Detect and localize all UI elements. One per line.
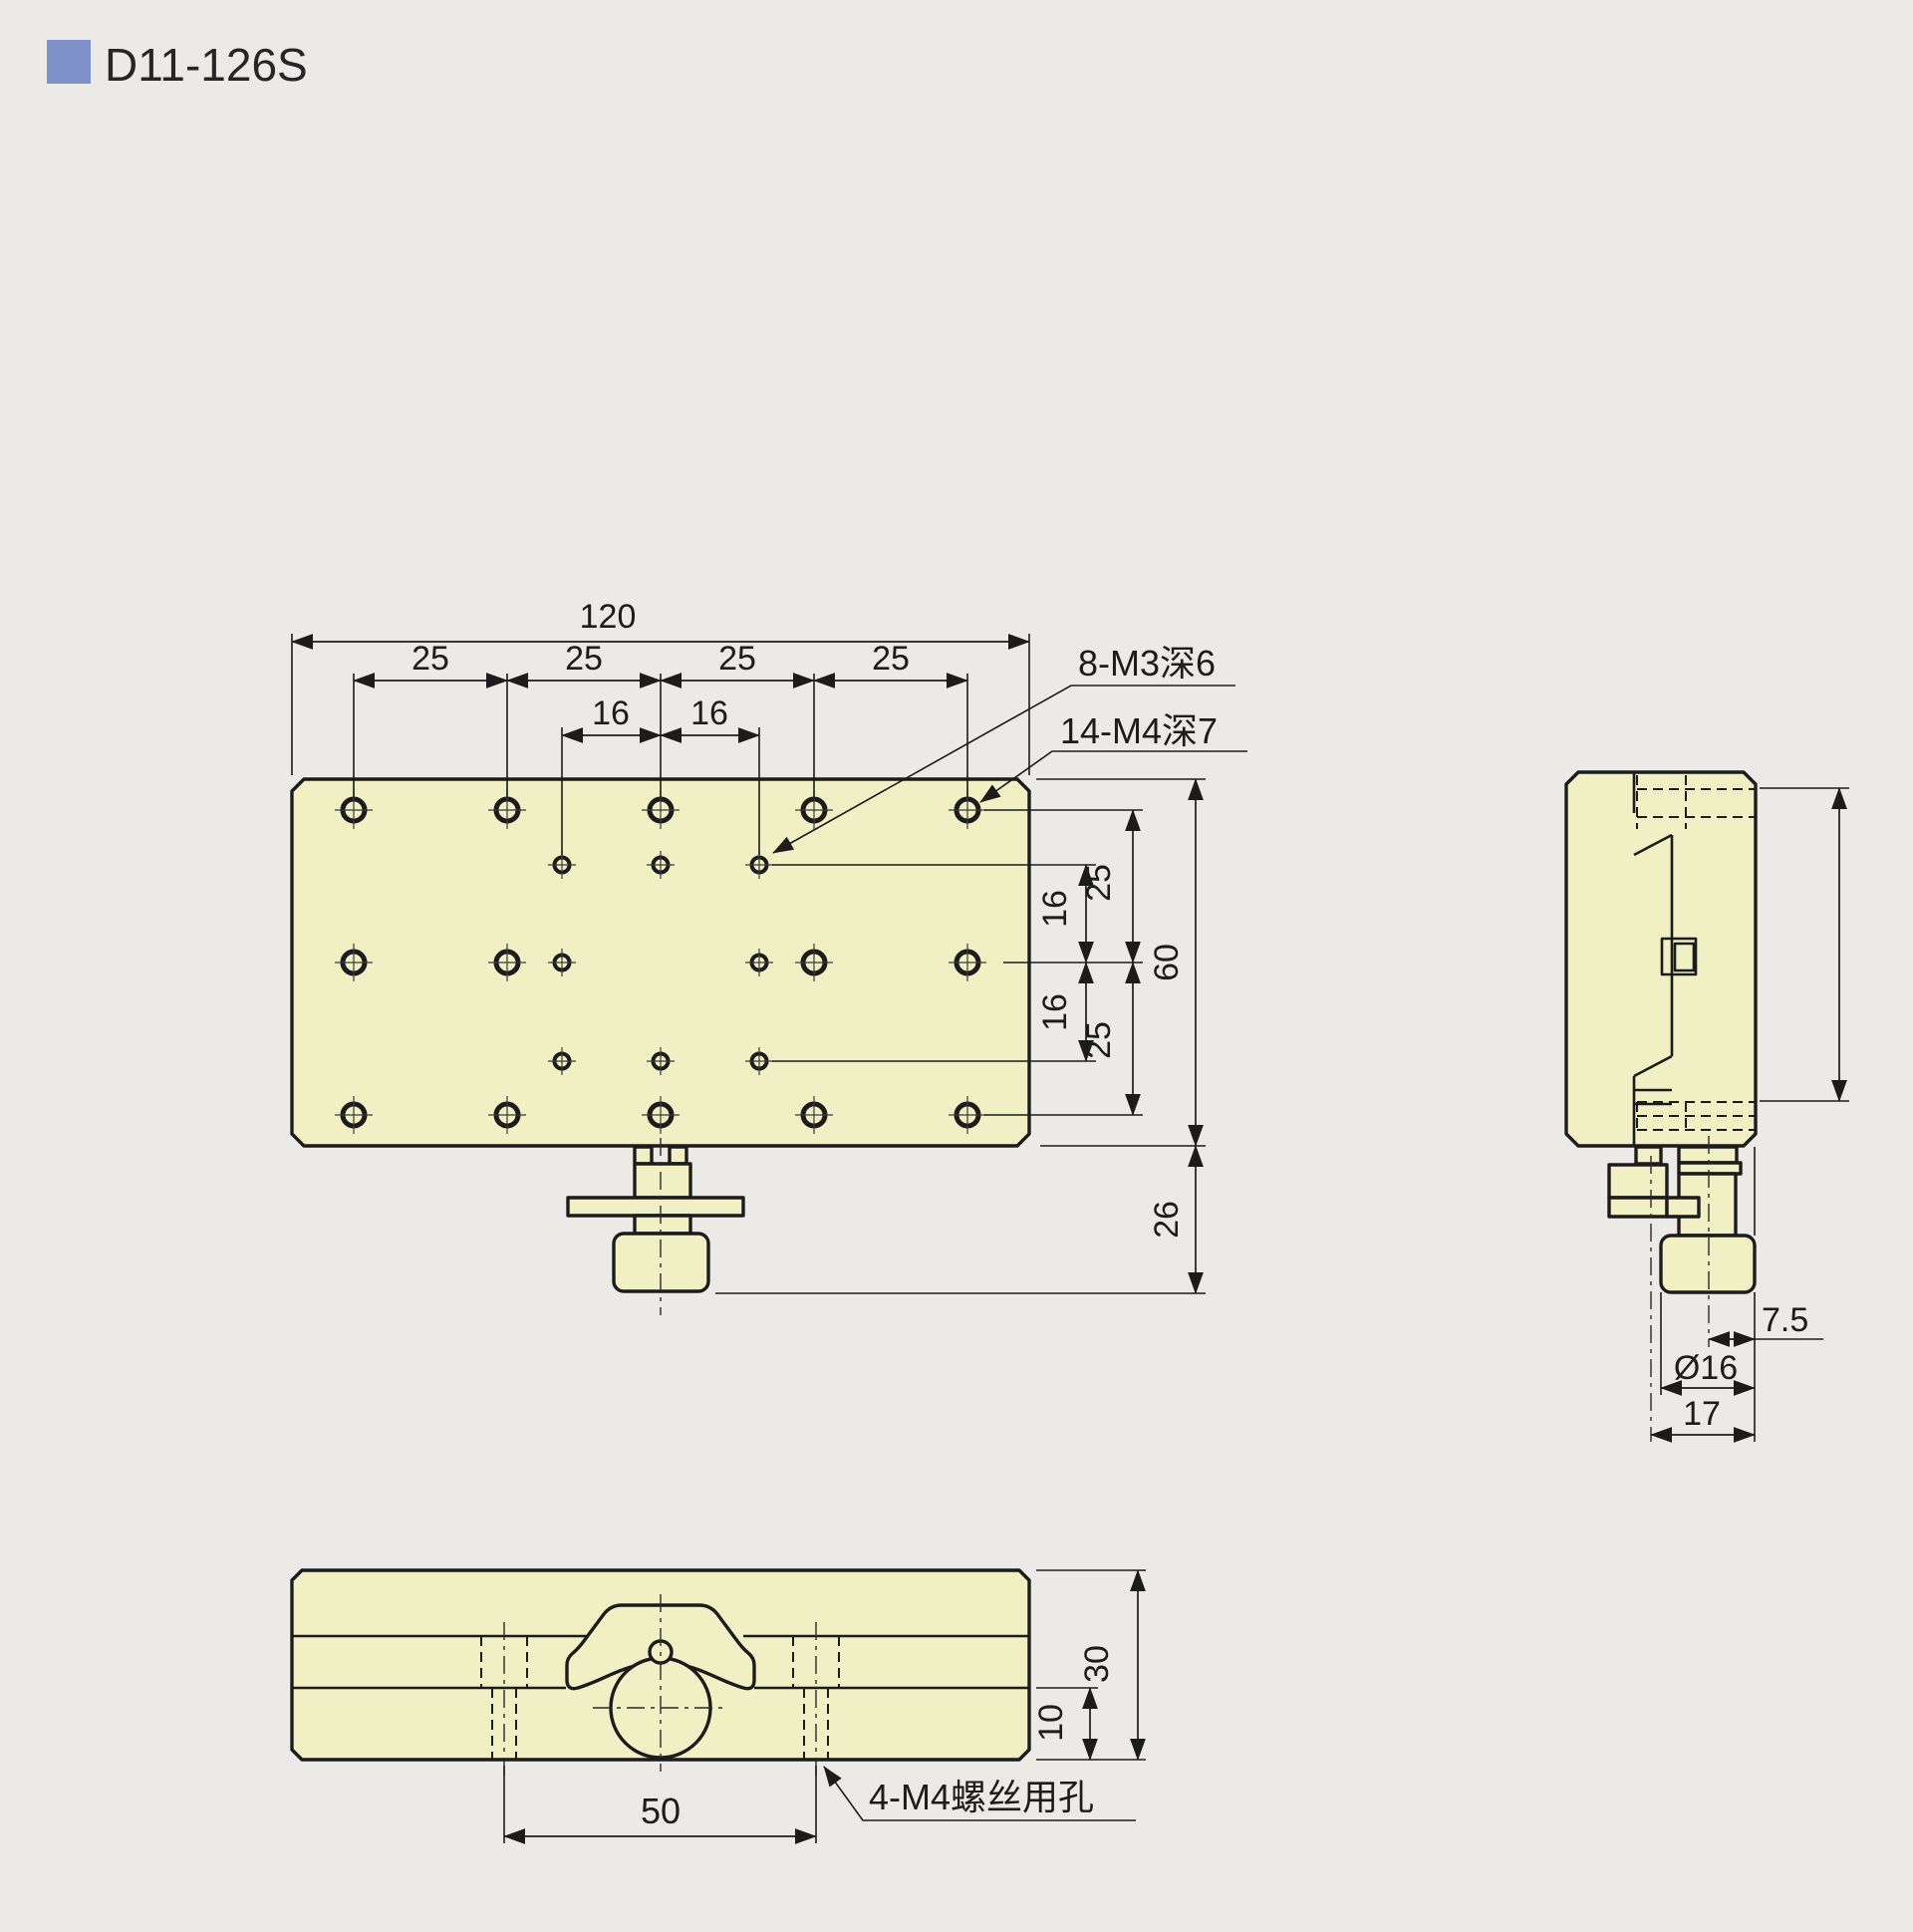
dim-25-4: 25 (872, 640, 910, 678)
label-m4-holes: 14-M4深7 (1060, 710, 1218, 751)
dim-16-upper: 16 (1036, 890, 1074, 928)
dim-7-5: 7.5 (1762, 1301, 1808, 1339)
bottom-view: 50 30 10 4-M4螺丝用孔 (292, 1570, 1146, 1843)
dim-16-2: 16 (690, 694, 728, 732)
top-view: 120 25 25 25 25 16 16 16 25 16 25 60 26 … (292, 598, 1247, 1315)
title-block: D11-126S (47, 39, 308, 91)
dim-16-lower: 16 (1036, 993, 1074, 1031)
front-knob-assembly (568, 1138, 743, 1315)
label-m3-holes: 8-M3深6 (1078, 643, 1216, 684)
dim-30: 30 (1078, 1645, 1116, 1683)
screw-callout: 4-M4螺丝用孔 (824, 1767, 1136, 1820)
dim-25-lower: 25 (1080, 1021, 1118, 1059)
dim-17: 17 (1683, 1395, 1721, 1433)
side-view: 7.5 Ø16 17 (1566, 772, 1849, 1442)
dim-25-1: 25 (411, 640, 449, 678)
dim-60: 60 (1148, 944, 1186, 981)
dim-26: 26 (1148, 1201, 1186, 1239)
side-knob-assembly (1609, 1136, 1755, 1442)
dim-25-3: 25 (718, 640, 756, 678)
top-view-plate (292, 779, 1029, 1146)
label-screw-holes: 4-M4螺丝用孔 (869, 1777, 1094, 1817)
technical-drawing: D11-126S (0, 0, 1913, 1932)
dim-10: 10 (1032, 1704, 1070, 1742)
dim-25-2: 25 (565, 640, 603, 678)
dim-120: 120 (580, 598, 637, 636)
dim-16-1: 16 (592, 694, 630, 732)
dim-50: 50 (641, 1791, 681, 1831)
drawing-page: D11-126S (0, 0, 1913, 1932)
side-knob (1661, 1236, 1755, 1292)
page-title: D11-126S (105, 39, 308, 91)
dim-25-upper: 25 (1080, 864, 1118, 902)
title-bullet (47, 40, 91, 84)
dim-dia16: Ø16 (1674, 1349, 1738, 1387)
